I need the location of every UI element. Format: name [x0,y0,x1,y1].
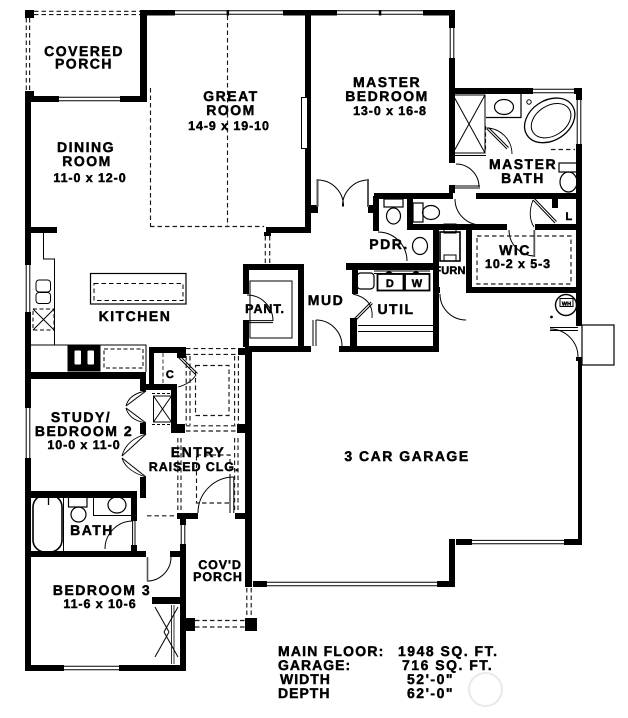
svg-text:BEDROOM 3: BEDROOM 3 [53,582,151,598]
svg-text:10-0 x 11-0: 10-0 x 11-0 [47,438,120,452]
svg-text:PDR.: PDR. [369,236,408,252]
svg-text:62'-0": 62'-0" [407,685,454,701]
svg-text:11-6 x 10-6: 11-6 x 10-6 [63,597,136,611]
svg-text:3 CAR GARAGE: 3 CAR GARAGE [344,448,469,464]
svg-text:BATH: BATH [501,170,545,186]
svg-text:C: C [166,369,174,381]
svg-text:DEPTH: DEPTH [278,685,330,701]
svg-text:PORCH: PORCH [193,570,243,584]
svg-text:ROOM: ROOM [206,102,256,118]
svg-text:BEDROOM 2: BEDROOM 2 [35,423,133,439]
svg-text:BATH: BATH [70,522,114,538]
svg-text:WIC: WIC [499,242,531,258]
svg-text:BEDROOM: BEDROOM [345,88,429,104]
svg-text:FURN: FURN [434,265,465,277]
svg-text:WH: WH [562,302,571,308]
svg-text:ROOM: ROOM [62,153,112,169]
svg-text:D: D [386,278,394,290]
svg-text:UTIL: UTIL [377,301,414,317]
svg-text:L: L [566,211,573,223]
svg-text:W: W [412,278,423,290]
svg-text:11-0 x 12-0: 11-0 x 12-0 [53,171,126,185]
svg-text:PANT.: PANT. [245,302,285,316]
svg-text:KITCHEN: KITCHEN [99,308,172,324]
svg-text:MUD: MUD [308,292,344,308]
svg-text:14-9 x 19-10: 14-9 x 19-10 [188,119,270,133]
svg-text:ENTRY: ENTRY [171,444,225,460]
svg-text:PORCH: PORCH [55,56,113,72]
svg-text:13-0 x 16-8: 13-0 x 16-8 [353,104,427,118]
svg-text:RAISED CLG.: RAISED CLG. [149,460,239,474]
svg-text:10-2 x 5-3: 10-2 x 5-3 [485,257,551,271]
